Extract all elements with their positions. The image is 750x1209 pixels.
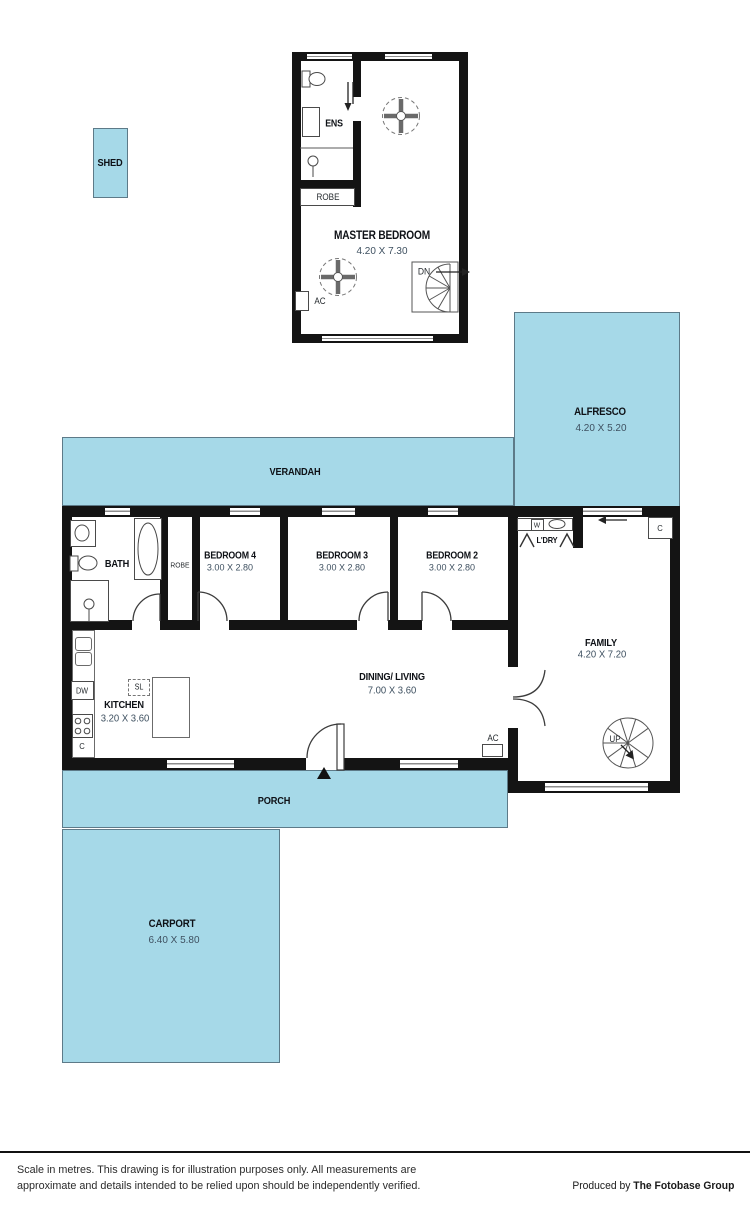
alfresco-label: ALFRESCO bbox=[574, 406, 626, 418]
window bbox=[105, 506, 130, 517]
ac-unit-dining bbox=[482, 744, 503, 757]
cooktop bbox=[72, 714, 93, 738]
wall bbox=[388, 620, 422, 630]
window bbox=[428, 506, 458, 517]
bedroom3-dim: 3.00 X 2.80 bbox=[319, 563, 365, 574]
porch-label: PORCH bbox=[258, 795, 290, 807]
kitchen-island bbox=[152, 677, 190, 738]
producer-credit: Produced by The Fotobase Group bbox=[572, 1180, 734, 1192]
company-name: The Fotobase Group bbox=[633, 1180, 734, 1192]
ens-shower-rose-icon bbox=[308, 156, 318, 177]
footer-divider bbox=[0, 1151, 750, 1153]
laundry-label: L'DRY bbox=[537, 535, 558, 545]
dishwasher-label: DW bbox=[76, 687, 88, 696]
master-bedroom-label: MASTER BEDROOM bbox=[334, 230, 430, 242]
robe-main-label: ROBE bbox=[170, 561, 189, 570]
master-bedroom-dim: 4.20 X 7.30 bbox=[356, 245, 407, 257]
washer-label: W bbox=[534, 521, 540, 530]
family-dim: 4.20 X 7.20 bbox=[578, 650, 627, 661]
wall bbox=[353, 61, 361, 97]
bath-vanity bbox=[70, 520, 96, 547]
ac-upper-label: AC bbox=[314, 296, 325, 306]
bedroom2-dim: 3.00 X 2.80 bbox=[429, 563, 475, 574]
ceiling-fan-icon bbox=[383, 98, 420, 135]
kitchen-dim: 3.20 X 3.60 bbox=[101, 714, 150, 725]
skylight-label: SL bbox=[135, 683, 144, 692]
wall bbox=[573, 517, 583, 548]
dining-living-dim: 7.00 X 3.60 bbox=[368, 686, 417, 697]
dn-label: DN bbox=[418, 267, 430, 278]
family-label: FAMILY bbox=[585, 637, 617, 649]
fridge-space bbox=[75, 637, 92, 651]
carport-dim: 6.40 X 5.80 bbox=[148, 934, 199, 946]
bedroom4-label: BEDROOM 4 bbox=[204, 551, 256, 562]
wall bbox=[280, 517, 288, 630]
ac-dining-label: AC bbox=[487, 733, 498, 743]
bedroom4-dim: 3.00 X 2.80 bbox=[207, 563, 253, 574]
wall bbox=[192, 517, 200, 630]
carport-label: CARPORT bbox=[149, 918, 196, 930]
up-arrow-icon bbox=[621, 745, 634, 760]
kitchen-label: KITCHEN bbox=[104, 699, 144, 711]
disclaimer-text: Scale in metres. This drawing is for ill… bbox=[17, 1162, 537, 1194]
window bbox=[322, 506, 355, 517]
disclaimer-line-1: Scale in metres. This drawing is for ill… bbox=[17, 1162, 537, 1178]
ens-vanity bbox=[302, 107, 320, 137]
cupboard-kitchen-label: C bbox=[79, 741, 85, 751]
verandah-label: VERANDAH bbox=[270, 466, 321, 478]
window bbox=[307, 52, 352, 61]
bedroom2-label: BEDROOM 2 bbox=[426, 551, 478, 562]
ceiling-fan-icon bbox=[320, 259, 357, 296]
window bbox=[230, 506, 260, 517]
bath-toilet-icon bbox=[70, 556, 97, 571]
up-label: UP bbox=[609, 734, 620, 744]
wall bbox=[459, 52, 468, 343]
ens-toilet-icon bbox=[302, 71, 325, 87]
ens-label: ENS bbox=[325, 119, 343, 130]
window bbox=[385, 52, 432, 61]
produced-by-text: Produced by bbox=[572, 1180, 630, 1192]
ac-unit-upper bbox=[295, 291, 309, 311]
shed-label: SHED bbox=[98, 157, 123, 169]
bedroom3-label: BEDROOM 3 bbox=[316, 551, 368, 562]
wall bbox=[670, 506, 680, 793]
disclaimer-line-2: approximate and details intended to be r… bbox=[17, 1178, 537, 1194]
bath-label: BATH bbox=[105, 558, 129, 570]
dining-living-label: DINING/ LIVING bbox=[359, 671, 425, 683]
robe-upper-label: ROBE bbox=[317, 192, 340, 202]
laundry-bench bbox=[517, 518, 573, 531]
window bbox=[167, 758, 234, 770]
slide-arrow-left-icon bbox=[598, 516, 627, 524]
wall bbox=[160, 620, 198, 630]
bathtub bbox=[134, 518, 162, 580]
window bbox=[322, 334, 433, 343]
wall bbox=[300, 180, 353, 188]
shower bbox=[70, 580, 109, 622]
alfresco-dim: 4.20 X 5.20 bbox=[575, 422, 626, 434]
fridge-space bbox=[75, 652, 92, 666]
wall bbox=[390, 517, 398, 630]
door-opening bbox=[306, 758, 342, 770]
window bbox=[400, 758, 458, 770]
entry-arrow-down-icon bbox=[345, 82, 354, 111]
floor-plan-canvas: SHED ENS ROBE MASTER BEDROOM 4.20 X 7.30… bbox=[0, 0, 750, 1209]
carport-area bbox=[62, 829, 280, 1063]
sliding-door bbox=[583, 506, 642, 517]
wall bbox=[229, 620, 357, 630]
window bbox=[545, 781, 648, 793]
cupboard-family-label: C bbox=[657, 523, 663, 533]
